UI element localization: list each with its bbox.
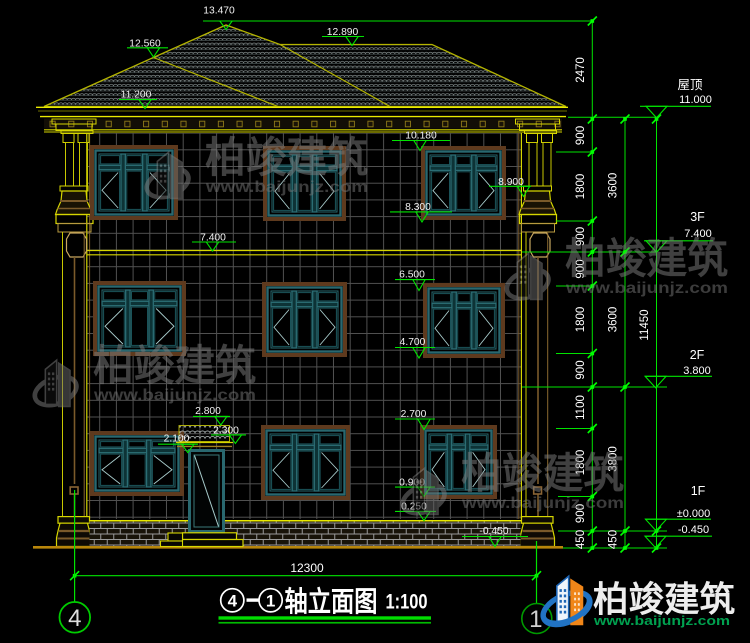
svg-text:轴立面图: 轴立面图 (285, 585, 378, 617)
svg-text:1800: 1800 (575, 174, 587, 200)
svg-text:4: 4 (68, 605, 81, 632)
svg-text:11.000: 11.000 (679, 94, 712, 106)
svg-text:450: 450 (608, 530, 620, 549)
svg-text:11450: 11450 (639, 309, 651, 340)
svg-text:1:100: 1:100 (386, 591, 428, 614)
svg-text:2.800: 2.800 (195, 406, 221, 417)
svg-text:www.baijunjz.com: www.baijunjz.com (205, 179, 368, 196)
svg-text:3F: 3F (690, 210, 705, 224)
svg-text:3600: 3600 (608, 173, 620, 199)
svg-text:2.700: 2.700 (401, 409, 427, 420)
svg-text:-0.450: -0.450 (479, 526, 508, 537)
svg-text:13.470: 13.470 (203, 6, 235, 17)
svg-text:柏竣建筑: 柏竣建筑 (565, 235, 728, 282)
svg-text:www.baijunjz.com: www.baijunjz.com (565, 280, 728, 297)
svg-text:6.500: 6.500 (399, 270, 425, 281)
svg-text:柏竣建筑: 柏竣建筑 (205, 134, 368, 181)
svg-text:柏竣建筑: 柏竣建筑 (461, 450, 624, 497)
svg-text:2.100: 2.100 (164, 434, 190, 445)
svg-text:1800: 1800 (575, 307, 587, 333)
svg-text:2F: 2F (690, 348, 705, 362)
svg-text:450: 450 (575, 530, 587, 549)
svg-text:-0.450: -0.450 (678, 524, 709, 536)
svg-text:1: 1 (266, 591, 275, 610)
svg-text:3600: 3600 (608, 307, 620, 333)
svg-text:±0.000: ±0.000 (677, 508, 711, 520)
svg-text:1F: 1F (691, 484, 706, 498)
svg-text:2470: 2470 (575, 57, 587, 83)
svg-text:www.baijunjz.com: www.baijunjz.com (593, 613, 730, 628)
svg-text:4: 4 (228, 591, 238, 610)
svg-text:12300: 12300 (290, 561, 324, 575)
svg-text:1: 1 (529, 606, 542, 633)
svg-text:www.baijunjz.com: www.baijunjz.com (93, 387, 256, 404)
svg-text:10.180: 10.180 (405, 131, 437, 142)
svg-text:11.200: 11.200 (121, 90, 152, 101)
svg-text:柏竣建筑: 柏竣建筑 (93, 342, 256, 389)
svg-text:1100: 1100 (575, 395, 587, 420)
svg-text:4.700: 4.700 (400, 337, 426, 348)
svg-text:900: 900 (575, 360, 587, 379)
svg-text:www.baijunjz.com: www.baijunjz.com (461, 495, 624, 512)
svg-text:900: 900 (575, 126, 587, 145)
svg-text:3.800: 3.800 (683, 365, 711, 377)
svg-text:屋顶: 屋顶 (677, 78, 703, 92)
